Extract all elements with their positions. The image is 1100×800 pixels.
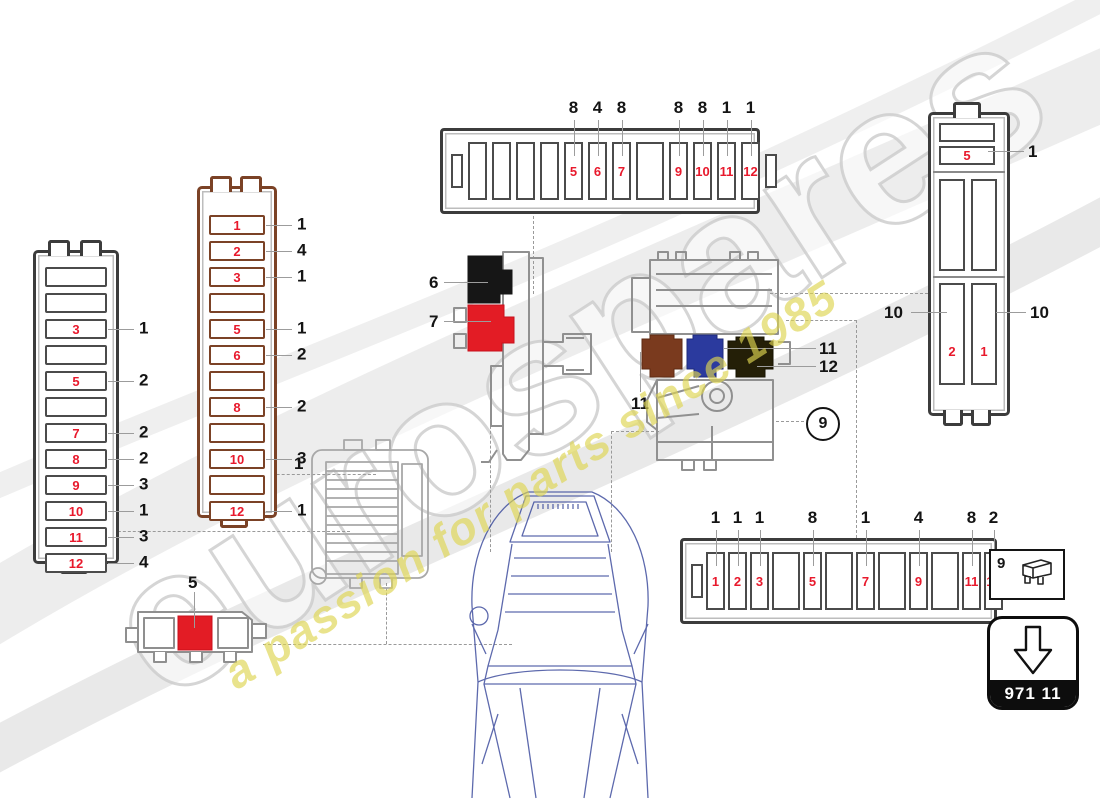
fuse-number: 6 [594, 165, 601, 178]
fuse-slot: 52 [45, 371, 107, 391]
fuse-slot: 62 [209, 345, 265, 365]
leader-line [574, 120, 575, 156]
callout-number[interactable]: 11 [819, 339, 837, 359]
fuse-slot [939, 123, 995, 142]
callout-number[interactable]: 7 [429, 312, 438, 332]
down-arrow-icon [990, 619, 1076, 680]
leader-line [266, 277, 292, 278]
callout-number[interactable]: 1 [297, 267, 306, 287]
fuse-number: 3 [756, 575, 763, 588]
fuse-slot: 72 [45, 423, 107, 443]
fuse-number: 2 [948, 345, 955, 358]
fuse-slot: 13 [750, 552, 769, 610]
fuse-slot [209, 293, 265, 313]
fuse-number: 11 [965, 575, 979, 588]
leader-line [266, 355, 292, 356]
fuse-slot: 11 [706, 552, 725, 610]
fuse-number: 9 [675, 165, 682, 178]
fuse-slot [45, 345, 107, 365]
fuse-slot: 51 [209, 319, 265, 339]
callout-number[interactable]: 10 [884, 303, 903, 323]
fuse-slot [492, 142, 511, 200]
fuse-number: 1 [980, 345, 987, 358]
fuse-slot [209, 423, 265, 443]
mount-tab [971, 410, 991, 426]
callout-number[interactable]: 1 [139, 501, 148, 521]
fuse-slot: 2 [939, 283, 965, 385]
fuse-number: 6 [233, 349, 240, 362]
leader-line [988, 151, 1024, 152]
callout-number[interactable]: 8 [569, 98, 578, 118]
leader-line [266, 407, 292, 408]
leader-line [972, 530, 973, 566]
relay-black [468, 256, 512, 303]
fuse-number: 5 [809, 575, 816, 588]
callout-number[interactable]: 12 [819, 357, 838, 377]
callout-number[interactable]: 1 [733, 508, 742, 528]
fuse-slot [45, 293, 107, 313]
fuse-slot: 87 [612, 142, 631, 200]
mount-tab [48, 240, 70, 256]
fuse-slot: 49 [909, 552, 928, 610]
leader-line [266, 225, 292, 226]
leader-line [727, 120, 728, 156]
dashed-connector [856, 320, 857, 543]
fuse-slot [825, 552, 853, 610]
leader-line [760, 530, 761, 566]
leader-line [266, 459, 292, 460]
leader-line [598, 120, 599, 156]
fusebox-left: 31 52 72 82 93 101 113 124 [33, 250, 119, 564]
callout-number[interactable]: 8 [698, 98, 707, 118]
fusebox-top: 85 46 87 89 810 111 112 [440, 128, 760, 214]
fuse-number: 12 [69, 557, 83, 570]
fuse-number: 10 [695, 165, 709, 178]
leader-line [813, 530, 814, 566]
fuse-slot: 810 [693, 142, 712, 200]
fuse-number: 12 [230, 505, 244, 518]
fuse-number: 5 [233, 323, 240, 336]
fuse-number: 3 [72, 323, 79, 336]
leader-line [738, 530, 739, 566]
part-code: 971 11 [990, 680, 1076, 707]
callout-number[interactable]: 1 [294, 454, 303, 474]
fuse-number: 1 [712, 575, 719, 588]
leader-line [679, 120, 680, 156]
leader-line [266, 511, 292, 512]
relay-red [468, 305, 514, 351]
callout-number[interactable]: 4 [139, 553, 148, 573]
callout-number[interactable]: 1 [1028, 142, 1037, 162]
fuse-slot: 89 [669, 142, 688, 200]
fuse-number: 7 [72, 427, 79, 440]
leader-line [622, 120, 623, 156]
callout-number[interactable]: 1 [861, 508, 870, 528]
callout-number[interactable]: 1 [755, 508, 764, 528]
fuse-slot [772, 552, 800, 610]
callout-number[interactable]: 8 [967, 508, 976, 528]
fuse-number: 5 [963, 149, 970, 162]
callout-number[interactable]: 8 [674, 98, 683, 118]
connector-cap [451, 154, 463, 188]
blade-fuse-icon [1015, 557, 1059, 593]
callout-number[interactable]: 3 [139, 475, 148, 495]
fuse-slot: 85 [803, 552, 822, 610]
fuse-slot: 113 [45, 527, 107, 547]
fuse-slot [636, 142, 664, 200]
leader-line [108, 485, 134, 486]
callout-number[interactable]: 3 [139, 527, 148, 547]
fuse-slot [878, 552, 906, 610]
fuse-slot: 5 [939, 146, 995, 165]
fuse-slot [540, 142, 559, 200]
fuse-diagram-page: eurospares 31 52 72 82 93 101 113 124 11… [0, 0, 1100, 800]
leader-line [444, 282, 488, 283]
mount-tab [80, 240, 102, 256]
leader-line [108, 433, 134, 434]
fuse-number: 9 [915, 575, 922, 588]
fuse-number: 11 [69, 531, 83, 544]
fuse-slot [971, 179, 997, 271]
leader-line [703, 120, 704, 156]
fuse-slot [45, 267, 107, 287]
fuse-slot [516, 142, 535, 200]
section-divider [933, 171, 1005, 173]
fuse-number: 8 [72, 453, 79, 466]
leader-line [911, 312, 947, 313]
fuse-slot [209, 371, 265, 391]
mount-tab [240, 176, 262, 192]
fuse-number: 5 [72, 375, 79, 388]
legend-box: 9 [989, 549, 1065, 600]
fuse-number: 7 [618, 165, 625, 178]
leader-line [194, 592, 195, 628]
fuse-number: 5 [570, 165, 577, 178]
fuse-slot: 103 [209, 449, 265, 469]
fuse-slot: 85 [564, 142, 583, 200]
fuse-slot: 112 [741, 142, 760, 200]
callout-number[interactable]: 2 [139, 371, 148, 391]
fuse-number: 9 [72, 479, 79, 492]
fuse-number: 1 [233, 219, 240, 232]
leader-line [108, 511, 134, 512]
leader-line [108, 459, 134, 460]
leader-line [266, 251, 292, 252]
mount-tab [953, 102, 981, 118]
leader-line [996, 312, 1026, 313]
section-divider [933, 276, 1005, 278]
fuse-number: 3 [233, 271, 240, 284]
leader-line [751, 120, 752, 156]
callout-number[interactable]: 1 [297, 215, 306, 235]
fuse-slot: 12 [728, 552, 747, 610]
callout-number[interactable]: 1 [139, 319, 148, 339]
fuse-number: 10 [69, 505, 83, 518]
circled-reference[interactable]: 9 [806, 407, 840, 441]
fuse-slot [468, 142, 487, 200]
leader-line [108, 537, 134, 538]
connector-cap [765, 154, 777, 188]
fuse-number: 12 [743, 165, 757, 178]
callout-number[interactable]: 6 [429, 273, 438, 293]
leader-line [866, 530, 867, 566]
callout-number[interactable]: 1 [722, 98, 731, 118]
fuse-slot: 31 [209, 267, 265, 287]
leader-line [108, 381, 134, 382]
fuse-number: 8 [233, 401, 240, 414]
fuse-slot: 24 [209, 241, 265, 261]
callout-number[interactable]: 1 [746, 98, 755, 118]
callout-number[interactable]: 2 [989, 508, 998, 528]
fuse-slot: 31 [45, 319, 107, 339]
fusebox-right: 5 2 1 [928, 112, 1010, 416]
fuse-slot [45, 397, 107, 417]
leader-line [919, 530, 920, 566]
part-number-stamp: 971 11 [987, 616, 1079, 710]
fuse-slot: 11 [209, 215, 265, 235]
fuse-slot: 111 [717, 142, 736, 200]
fuse-slot: 121 [209, 501, 265, 521]
fusebox-bottom: 11 12 13 85 17 49 811 212 [680, 538, 997, 624]
legend-ref-number: 9 [997, 555, 1005, 572]
callout-number[interactable]: 1 [711, 508, 720, 528]
mount-tab [210, 176, 232, 192]
fuse-number: 2 [734, 575, 741, 588]
callout-number[interactable]: 2 [139, 423, 148, 443]
connector-cap [691, 564, 703, 598]
fuse-slot: 101 [45, 501, 107, 521]
callout-number[interactable]: 8 [808, 508, 817, 528]
fuse-number: 7 [862, 575, 869, 588]
leader-line [444, 321, 491, 322]
fuse-slot: 17 [856, 552, 875, 610]
callout-number[interactable]: 1 [297, 319, 306, 339]
fuse-number: 11 [720, 165, 734, 178]
fusebox-brown: 11 24 31 51 62 82 103 121 [197, 186, 277, 518]
callout-number[interactable]: 8 [617, 98, 626, 118]
leader-line [108, 563, 134, 564]
fuse-slot: 124 [45, 553, 107, 573]
fuse-slot: 93 [45, 475, 107, 495]
fuse-slot: 811 [962, 552, 981, 610]
callout-number[interactable]: 4 [914, 508, 923, 528]
fuse-slot [931, 552, 959, 610]
leader-line [716, 530, 717, 566]
fuse-slot: 82 [209, 397, 265, 417]
fuse-slot: 1 [971, 283, 997, 385]
fuse-slot [209, 475, 265, 495]
callout-number[interactable]: 2 [139, 449, 148, 469]
fuse-number: 2 [233, 245, 240, 258]
callout-number[interactable]: 4 [593, 98, 602, 118]
callout-number[interactable]: 2 [297, 345, 306, 365]
callout-number[interactable]: 5 [188, 573, 197, 593]
fuse-number: 10 [230, 453, 244, 466]
callout-number[interactable]: 10 [1030, 303, 1049, 323]
fuse-slot: 46 [588, 142, 607, 200]
leader-line [108, 329, 134, 330]
leader-line [266, 329, 292, 330]
mount-tab [943, 410, 963, 426]
callout-number[interactable]: 2 [297, 397, 306, 417]
fuse-slot: 82 [45, 449, 107, 469]
callout-number[interactable]: 4 [297, 241, 306, 261]
fuse-red [178, 616, 212, 650]
